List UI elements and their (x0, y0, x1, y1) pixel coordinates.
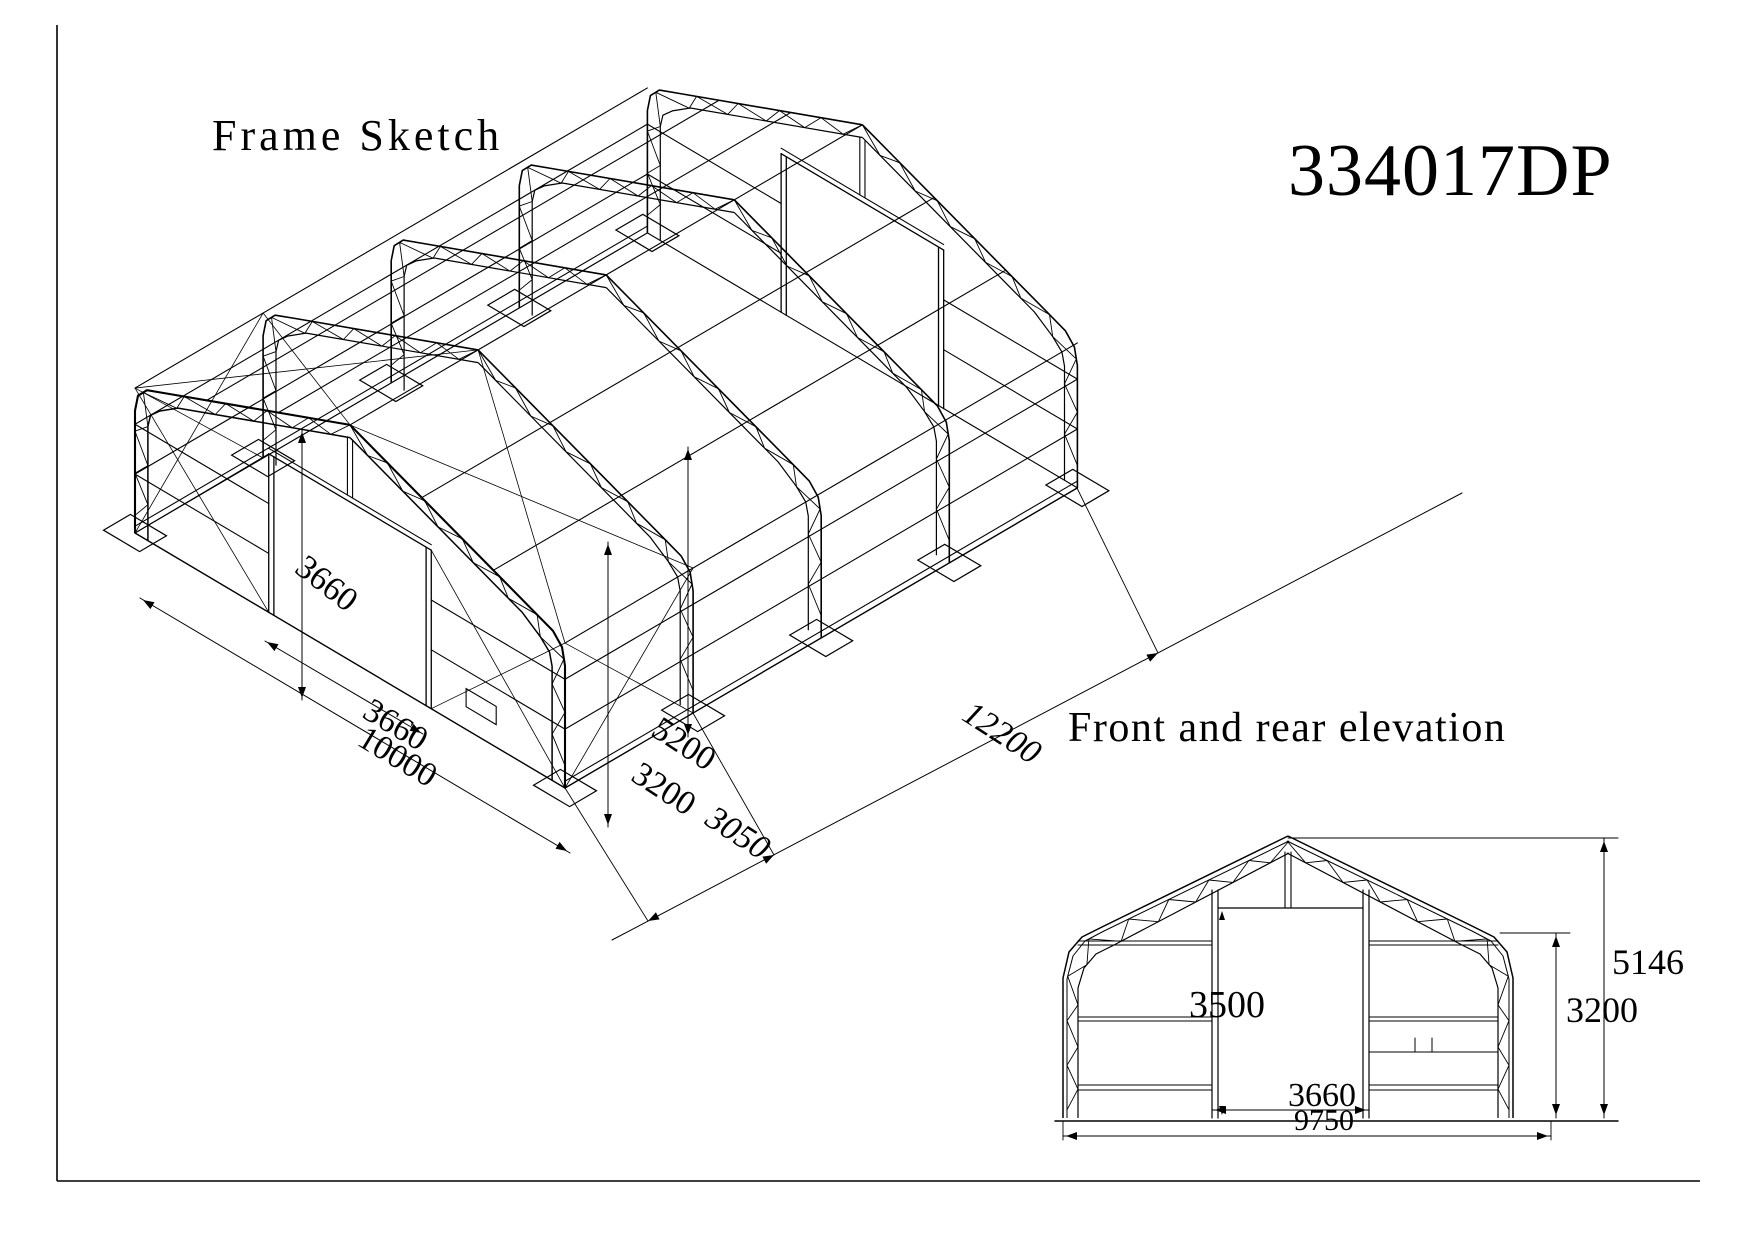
dimension-arrow (1552, 936, 1560, 947)
elev-dim-total-height: 5146 (1612, 942, 1684, 982)
dimension-arrow (1146, 653, 1158, 662)
door-header (269, 454, 432, 550)
arch-outer-chord (862, 125, 1077, 488)
arch-outer-chord (478, 350, 693, 713)
dimension-arrow (1600, 1104, 1608, 1115)
dimension-arrow (267, 642, 279, 651)
arch-inner-chord (478, 363, 680, 706)
arch-inner-chord (660, 108, 862, 241)
door-detail-panel (466, 689, 496, 725)
sheet-title: Frame Sketch (212, 111, 503, 160)
brace (431, 550, 565, 788)
truss-lattice (1067, 841, 1289, 1110)
door-header (269, 448, 432, 544)
arch-inner-chord (734, 213, 936, 556)
arch-inner-chord (532, 183, 734, 316)
door-frame (269, 138, 944, 725)
dimension-arrow (1219, 911, 1225, 920)
dimension-arrow (604, 544, 612, 555)
purlin (422, 198, 934, 498)
dimension-arrow (1552, 1104, 1560, 1115)
dimension-arrow (1355, 1106, 1366, 1114)
elevation-truss (1063, 836, 1513, 1118)
arch-inner-chord (862, 138, 1064, 481)
truss-arches (135, 90, 1077, 788)
extension-line (1077, 488, 1158, 653)
girt (431, 650, 565, 729)
elev-dim-eave-height: 3200 (1566, 990, 1638, 1030)
purlin (350, 125, 862, 425)
truss-lattice (478, 350, 693, 691)
elevation-rails (1078, 941, 1498, 1090)
door-header (781, 154, 944, 250)
girt (647, 124, 781, 203)
dimension-arrow (556, 842, 568, 851)
arch-inner-chord (404, 258, 606, 391)
dimension-arrow (1066, 1132, 1077, 1140)
girt (135, 424, 269, 503)
isometric-frame-drawing (104, 88, 1463, 940)
girt (135, 474, 269, 553)
arch-outer-chord (734, 200, 949, 563)
drawing-canvas: Frame Sketch 334017DP Front and rear ele… (0, 0, 1754, 1240)
iso-dimensions (140, 430, 1462, 940)
rear-base-edge (647, 233, 1077, 488)
arch-inner-chord (606, 288, 808, 631)
brace (135, 454, 269, 533)
elev-dim-base-width: 9750 (1294, 1104, 1354, 1137)
girt (944, 300, 1078, 379)
door-header (781, 148, 944, 244)
girt (431, 600, 565, 679)
dimension-arrow (1600, 841, 1608, 852)
brace (135, 388, 269, 612)
dimension-arrow (604, 814, 612, 825)
arch-outer-chord (647, 90, 862, 233)
elevation-caption: Front and rear elevation (1068, 705, 1506, 751)
truss-lattice (1287, 841, 1509, 1110)
purlin (135, 174, 647, 474)
drawing-sheet: Frame Sketch 334017DP Front and rear ele… (0, 0, 1754, 1240)
labels: Frame Sketch 334017DP Front and rear ele… (212, 111, 1684, 1137)
arch-inner-chord (148, 408, 350, 540)
truss-lattice (734, 200, 949, 541)
girt (647, 174, 781, 253)
truss-lattice (862, 125, 1077, 466)
dim-line (140, 598, 570, 853)
elev-dim-door-height: 3500 (1189, 984, 1265, 1026)
front-base-edge (135, 533, 565, 788)
iso-dim-side-height: 3660 (288, 548, 364, 619)
extension-line (565, 788, 648, 921)
dimension-arrow (648, 912, 660, 921)
brace (431, 643, 565, 709)
iso-dim-length: 12200 (956, 695, 1047, 772)
brace (135, 313, 263, 533)
elev-outer-chord2 (1067, 841, 1289, 1118)
girt (944, 350, 1078, 429)
purlin (493, 270, 1005, 570)
truss-lattice (647, 92, 862, 215)
elev-outer-chord (1063, 836, 1288, 1118)
dimension-arrow (143, 600, 155, 609)
arch-outer-chord (606, 275, 821, 638)
dimension-arrow (1537, 1132, 1548, 1140)
purlin (565, 429, 1077, 729)
model-number: 334017DP (1288, 130, 1613, 212)
elev-outer-chord (1288, 836, 1513, 1118)
dimension-arrow (762, 855, 774, 864)
